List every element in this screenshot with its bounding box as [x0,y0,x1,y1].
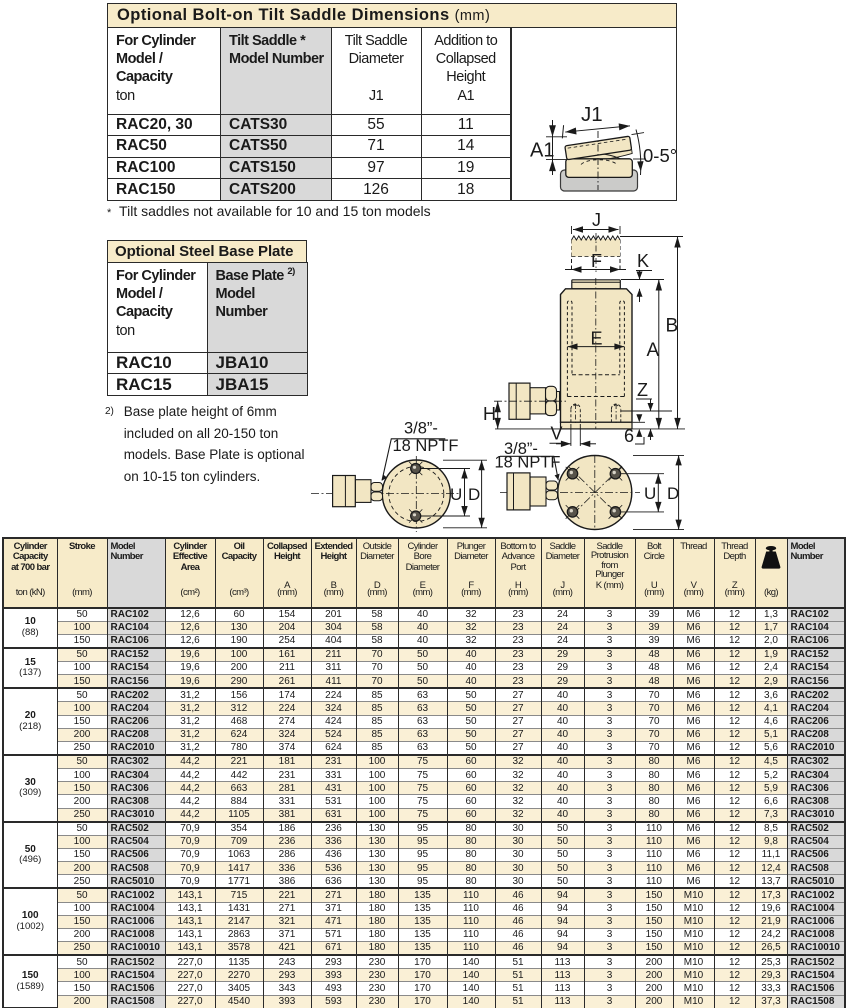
svg-text:D: D [468,485,480,504]
svg-text:18 NPTF: 18 NPTF [393,437,459,455]
svg-text:6: 6 [624,426,634,446]
svg-text:U: U [644,484,656,503]
svg-text:E: E [591,329,603,349]
svg-text:U: U [450,485,462,504]
svg-text:0-5°: 0-5° [643,145,676,166]
svg-text:Z: Z [637,380,648,400]
svg-text:B: B [666,316,679,337]
svg-text:V: V [551,424,563,444]
svg-text:3/8”-: 3/8”- [404,420,438,438]
svg-text:A: A [647,340,660,361]
svg-text:D: D [667,484,679,503]
svg-text:J1: J1 [581,103,603,126]
svg-text:A1: A1 [530,139,554,161]
svg-text:K: K [637,251,649,271]
svg-text:H: H [483,404,496,424]
svg-text:J: J [592,213,601,230]
svg-text:F: F [591,251,602,271]
